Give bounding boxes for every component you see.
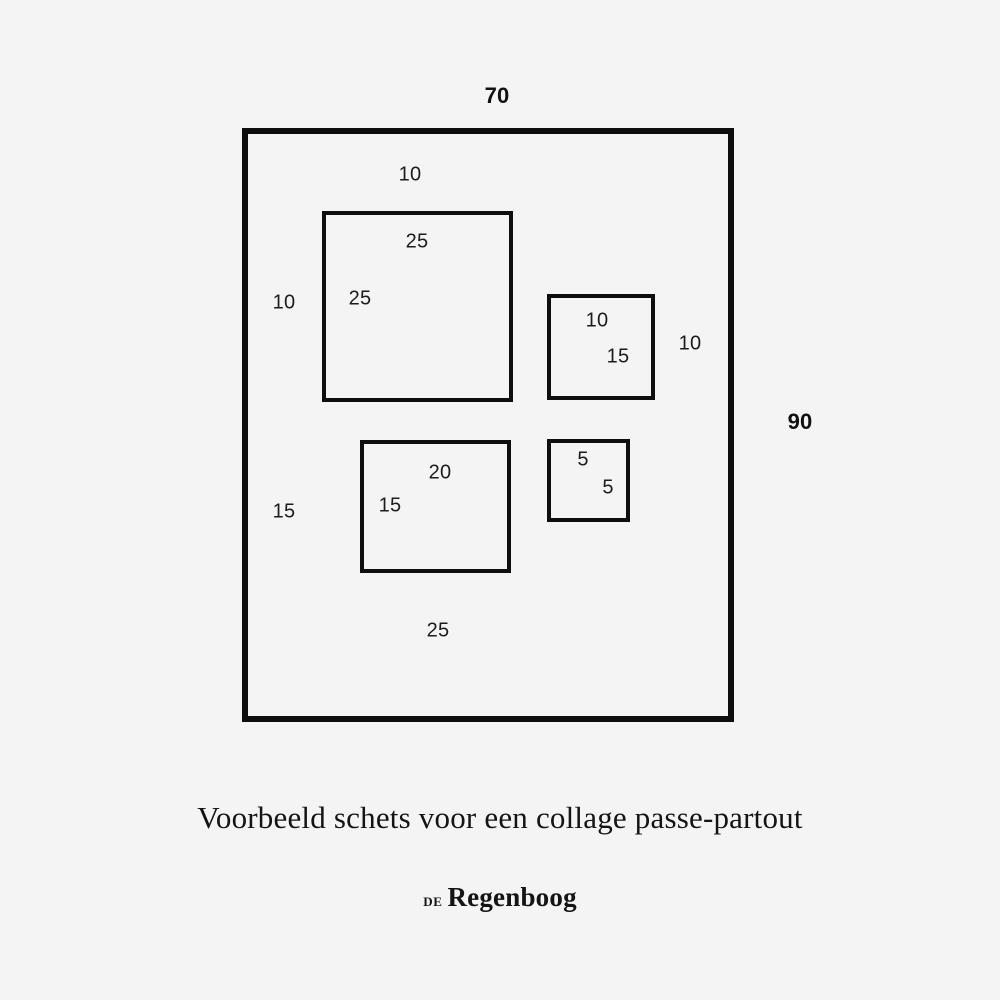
- opening-20x15-height-label: 15: [379, 495, 402, 518]
- opening-10x15-height-label: 15: [607, 346, 630, 369]
- outer-width-label: 70: [485, 83, 510, 109]
- opening-25x25-width-label: 25: [406, 231, 429, 254]
- margin-left-lower-label: 15: [273, 501, 296, 524]
- opening-25x25-height-label: 25: [349, 288, 372, 311]
- opening-10x15-width-label: 10: [586, 310, 609, 333]
- caption: Voorbeeld schets voor een collage passe-…: [0, 800, 1000, 836]
- opening-20x15-width-label: 20: [429, 462, 452, 485]
- margin-bottom-label: 25: [427, 620, 450, 643]
- opening-5x5-height-label: 5: [602, 477, 613, 500]
- logo-prefix: DE: [423, 894, 442, 909]
- margin-top-label: 10: [399, 164, 422, 187]
- logo-name: Regenboog: [447, 882, 576, 912]
- opening-5x5-width-label: 5: [577, 449, 588, 472]
- margin-right-label: 10: [679, 333, 702, 356]
- outer-height-label: 90: [788, 409, 813, 435]
- margin-left-upper-label: 10: [273, 292, 296, 315]
- logo: DERegenboog: [0, 882, 1000, 913]
